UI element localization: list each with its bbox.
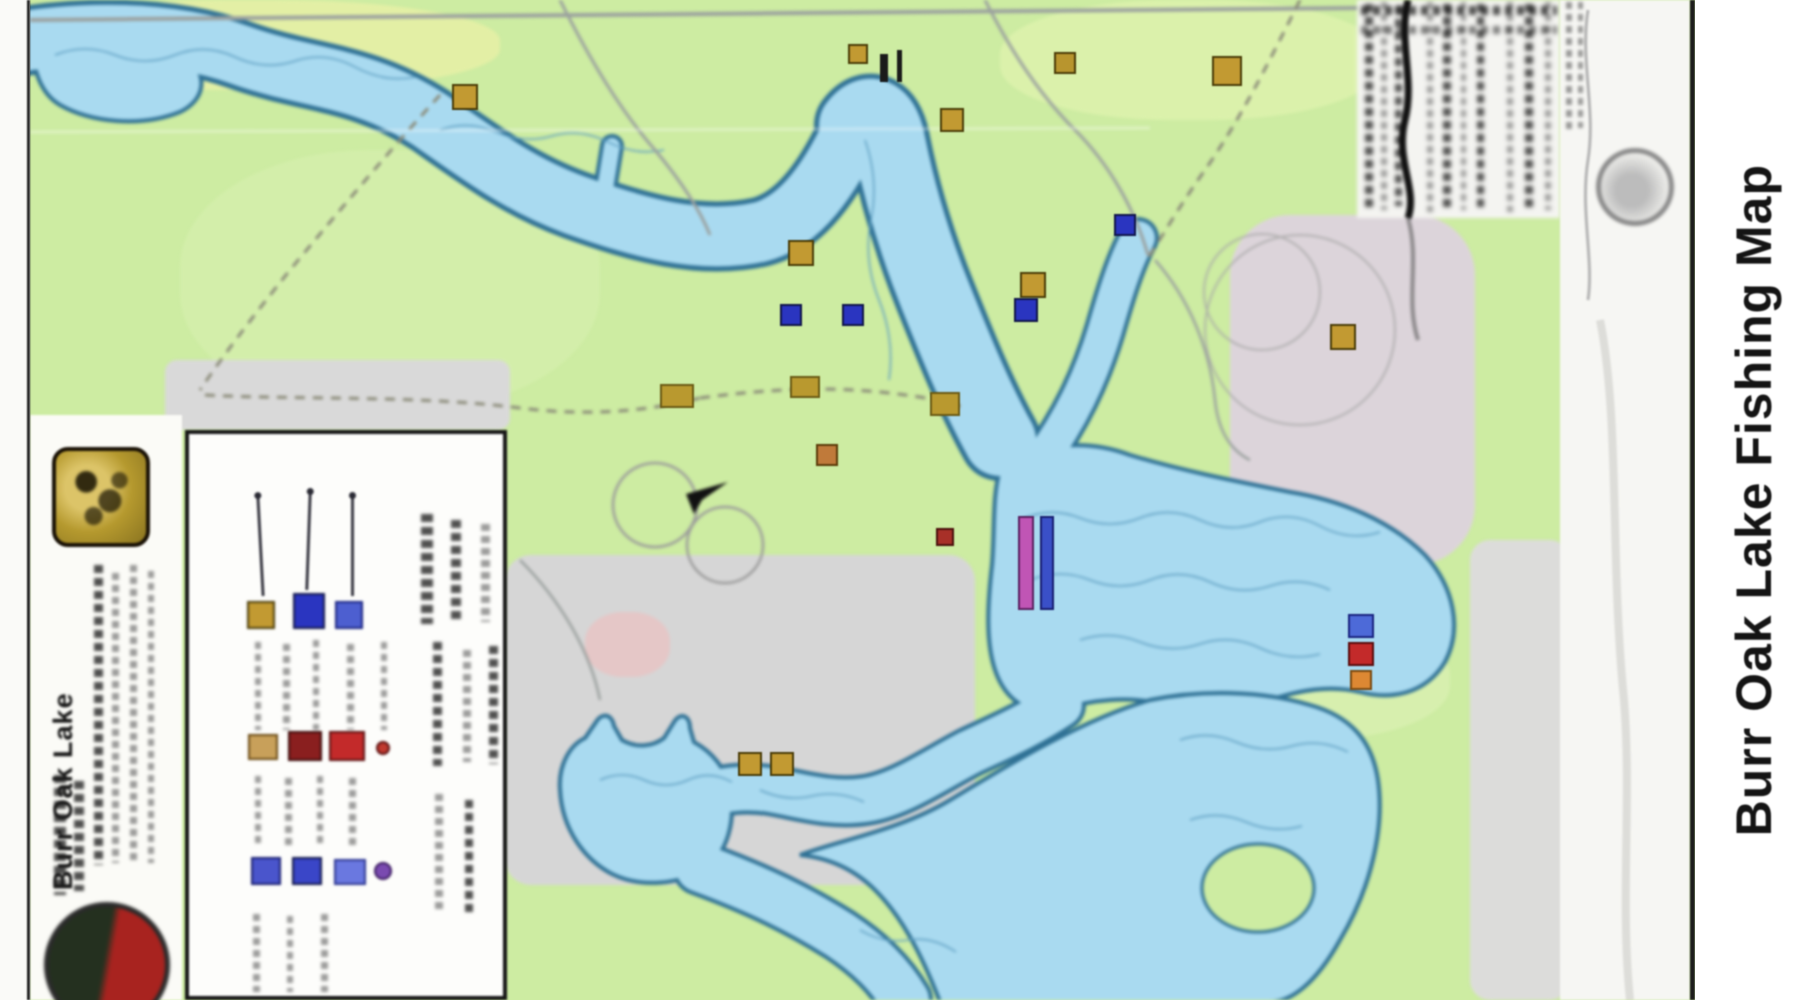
legend-dot-red [376, 741, 390, 755]
illegible-text [321, 914, 328, 992]
illegible-text [435, 794, 443, 914]
fishing-map-scan: Burr Oak Lake Burr Oak Lake Fishing Map [0, 0, 1800, 1000]
illegible-text [313, 640, 319, 730]
legend-swatch-tan [248, 734, 278, 760]
illegible-text [287, 916, 293, 992]
illegible-text [489, 646, 498, 764]
map-frame-border [27, 0, 30, 1000]
legend-swatch-blue [335, 601, 363, 629]
legend-dot-purple [374, 862, 392, 880]
access-marker-gold [770, 752, 794, 776]
illegible-text [253, 914, 260, 992]
access-marker-gold [940, 108, 964, 132]
illegible-text [317, 776, 323, 846]
legend-swatches [189, 434, 503, 996]
access-marker-gold [1054, 52, 1076, 74]
illegible-text [349, 778, 356, 846]
illegible-text [465, 800, 473, 912]
route-number-blob [660, 384, 694, 408]
gold-logo-emblem-icon [64, 459, 138, 535]
access-marker-gold [1212, 56, 1242, 86]
fish-marker-navy [1014, 298, 1038, 322]
access-marker-gold [788, 240, 814, 266]
access-marker-gold [816, 444, 838, 466]
round-red-green-logo [44, 902, 170, 1000]
illegible-text [112, 573, 119, 863]
access-marker-gold [1330, 324, 1356, 350]
map-title-container: Burr Oak Lake Fishing Map [1712, 0, 1796, 1000]
boat-ramp-bar-blue [1040, 516, 1054, 610]
illegible-text [433, 642, 442, 766]
legend-swatch-gold [247, 601, 275, 629]
illegible-text [481, 524, 490, 622]
illegible-text [148, 571, 154, 863]
legend-swatch-lightblue [334, 859, 366, 885]
illegible-text [451, 520, 461, 624]
illegible-text [130, 565, 137, 865]
black-tick [880, 54, 888, 82]
illegible-text [421, 514, 433, 624]
page-title: Burr Oak Lake Fishing Map [1725, 164, 1783, 836]
boat-ramp-bar-magenta [1018, 516, 1034, 610]
fish-marker-navy [780, 304, 802, 326]
left-margin [0, 0, 30, 1000]
fish-marker-orange [1350, 670, 1372, 690]
illegible-text [74, 781, 84, 891]
illegible-text [255, 776, 261, 846]
legend-swatch-navy2 [292, 857, 322, 885]
illegible-text [94, 565, 103, 865]
black-tick [897, 50, 902, 82]
sidebar-panel: Burr Oak Lake [30, 415, 182, 1000]
inner-margin-strip [1560, 0, 1690, 1000]
illegible-text [381, 642, 387, 730]
gold-park-logo [52, 447, 150, 547]
illegible-text [54, 775, 66, 895]
illegible-text [255, 642, 261, 730]
access-marker-gold [848, 44, 868, 64]
fish-marker-red [1348, 642, 1374, 666]
fish-marker-navy [842, 304, 864, 326]
access-marker-gold [452, 84, 478, 110]
legend-swatch-navy [293, 593, 325, 629]
legend-box [185, 430, 507, 1000]
legend-swatch-blue2 [251, 857, 281, 885]
fish-marker-navy [1114, 214, 1136, 236]
circular-emblem-icon [1596, 148, 1674, 226]
illegible-text [285, 778, 292, 846]
fish-marker-blue [1348, 614, 1374, 638]
legend-swatch-red [329, 731, 365, 761]
route-number-blob [930, 392, 960, 416]
route-number-blob [790, 376, 820, 398]
access-marker-gold [738, 752, 762, 776]
legend-swatch-darkred [288, 731, 322, 761]
small-red-marker [936, 528, 954, 546]
illegible-text [283, 644, 290, 730]
illegible-text [463, 650, 471, 762]
access-marker-gold [1020, 272, 1046, 298]
illegible-text [347, 644, 354, 730]
